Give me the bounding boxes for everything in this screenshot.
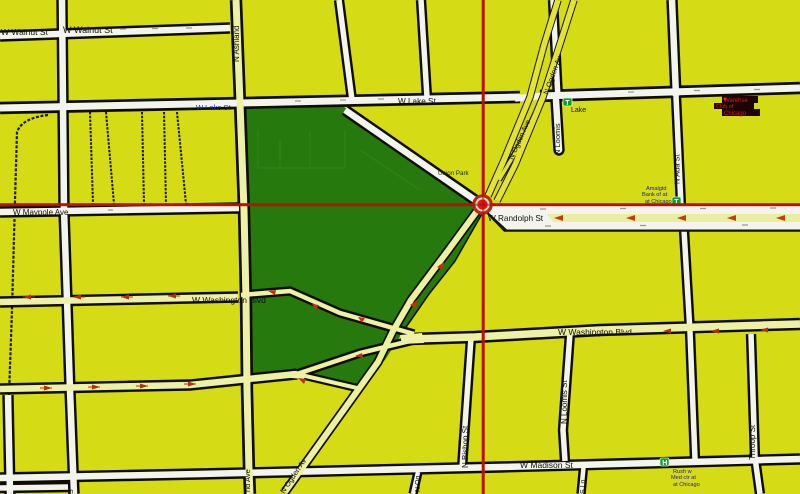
svg-text:W Washington Blvd: W Washington Blvd [558, 327, 632, 337]
svg-text:N Bishop St: N Bishop St [461, 425, 470, 468]
svg-text:at Chicago: at Chicago [673, 482, 700, 488]
svg-text:W Lake St: W Lake St [398, 97, 436, 106]
svg-text:N Loomis St: N Loomis St [560, 380, 569, 424]
svg-text:Med ctr at: Med ctr at [671, 475, 696, 481]
svg-text:W Madison St: W Madison St [520, 460, 574, 470]
svg-text:nd Ave: nd Ave [243, 469, 252, 492]
svg-text:Lake: Lake [571, 107, 586, 114]
svg-text:W Washington Blvd: W Washington Blvd [192, 295, 266, 305]
svg-text:N Ada St: N Ada St [673, 153, 682, 184]
svg-text:Club of: Club of [716, 104, 734, 110]
svg-text:W Walnut St: W Walnut St [1, 27, 49, 37]
svg-text:W Walnut St: W Walnut St [63, 25, 113, 35]
svg-text:W Lake St: W Lake St [196, 103, 232, 112]
svg-text:W Randolph St: W Randolph St [488, 214, 544, 223]
svg-text:S Lo: S Lo [580, 479, 587, 494]
svg-text:Throop St: Throop St [748, 424, 757, 460]
svg-text:Union Park: Union Park [438, 170, 470, 177]
svg-text:Bank of at: Bank of at [642, 192, 668, 198]
svg-text:T: T [565, 100, 570, 107]
svg-text:N Og: N Og [415, 476, 422, 492]
svg-text:S: S [68, 489, 75, 494]
svg-text:N Loomis: N Loomis [553, 123, 562, 155]
svg-text:H: H [662, 460, 667, 467]
svg-text:Chicago: Chicago [724, 111, 747, 117]
svg-text:W Maypole Ave: W Maypole Ave [13, 208, 69, 217]
svg-text:N Ashland: N Ashland [232, 26, 241, 62]
